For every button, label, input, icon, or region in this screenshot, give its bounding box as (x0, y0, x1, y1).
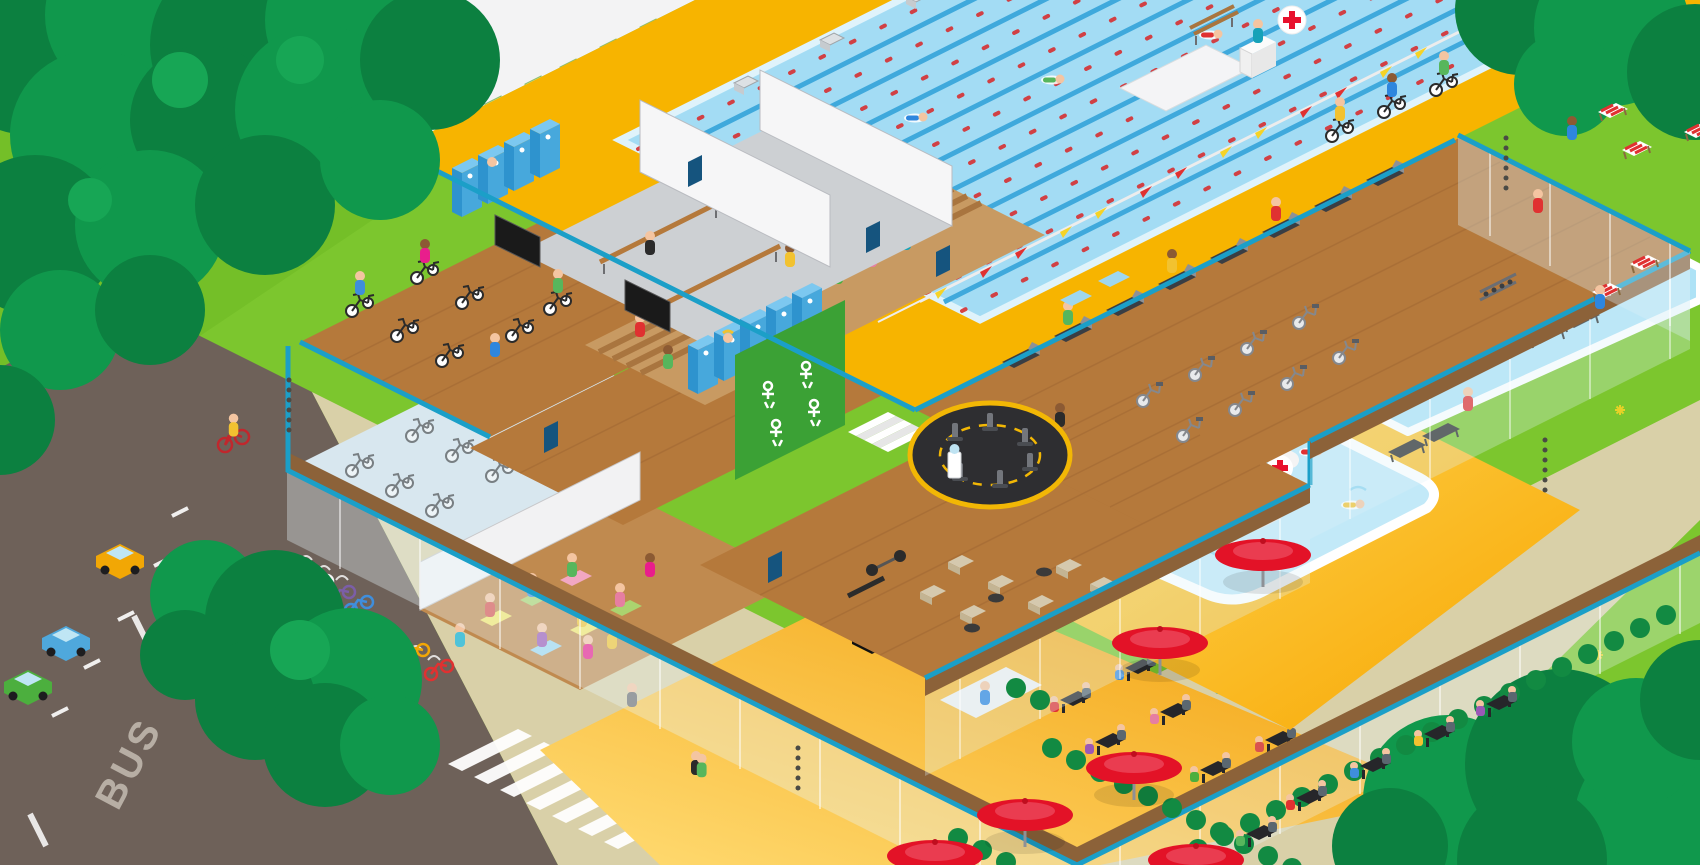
bike-rider (1439, 51, 1449, 75)
bike-rider (1387, 73, 1397, 97)
water-cooler (948, 444, 961, 478)
yoga-instructor (645, 553, 655, 577)
leisure-centre-illustration: BUS (0, 0, 1700, 865)
spin-rider (355, 271, 365, 295)
runner (1167, 249, 1177, 273)
runner (1271, 197, 1281, 221)
first-aider (1253, 19, 1263, 43)
leisure-centre-scene: BUS (0, 0, 1700, 865)
bike-rider (1335, 97, 1345, 121)
functional-training-zone (910, 403, 1070, 507)
spin-rider (553, 269, 563, 293)
spin-rider (420, 239, 430, 263)
